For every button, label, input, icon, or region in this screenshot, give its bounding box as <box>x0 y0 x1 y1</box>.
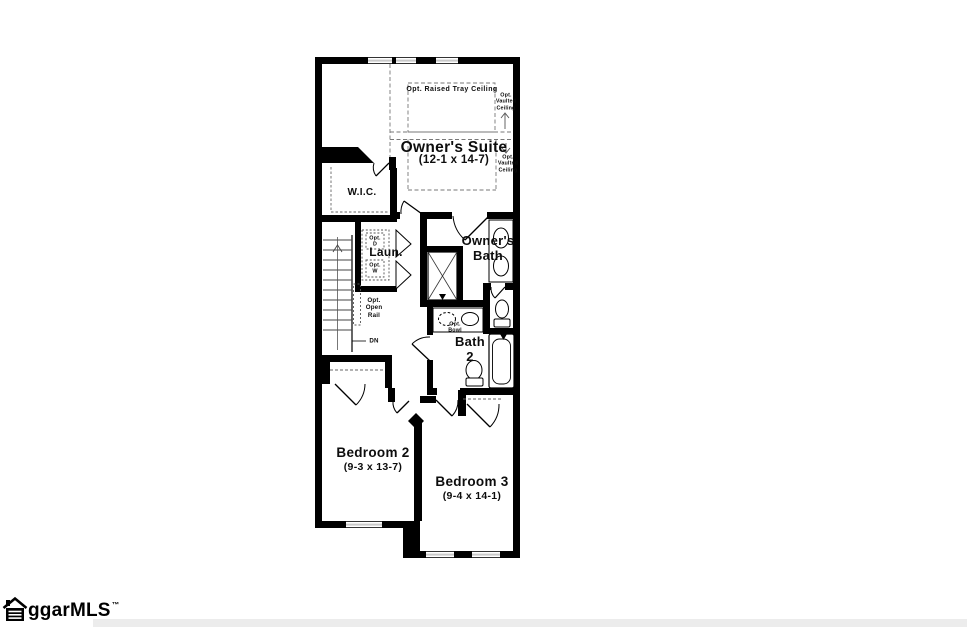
laundry-label: Laun. <box>369 245 403 259</box>
window <box>472 552 500 557</box>
owners-suite-door <box>401 201 422 214</box>
opt-bowl-label: Opt. Bowl <box>448 322 461 335</box>
bottom-gray-strip <box>93 619 967 627</box>
trademark-symbol: ™ <box>112 600 120 609</box>
opt-washer-label: Opt. W <box>369 263 380 276</box>
bedroom2-label: Bedroom 2 <box>336 445 409 461</box>
window <box>436 58 458 63</box>
house-icon <box>2 596 28 623</box>
bedroom3-label: Bedroom 3 <box>435 474 508 490</box>
wic-door <box>373 163 389 176</box>
vaulted-ceiling-lower-label: Opt. Vaulted Ceiling <box>498 154 518 173</box>
floorplan-page: Opt. Raised Tray Ceiling Opt. Vaulted Ce… <box>0 0 967 627</box>
vaulted-ceiling-upper-label: Opt. Vaulted Ceiling <box>496 92 516 111</box>
open-rail-label: Opt. Open Rail <box>366 297 383 319</box>
toilet <box>494 300 510 327</box>
bedroom2-door <box>393 401 409 413</box>
arrow-up-icon <box>501 113 509 129</box>
shower <box>428 252 457 300</box>
window <box>368 58 392 63</box>
bedroom2-dims: (9-3 x 13-7) <box>344 461 402 473</box>
bedroom3-door <box>436 400 458 416</box>
tray-ceiling-label: Opt. Raised Tray Ceiling <box>406 86 497 94</box>
wic-label: W.I.C. <box>347 187 376 199</box>
window <box>396 58 416 63</box>
owners-suite-dims: (12-1 x 14-7) <box>419 154 489 168</box>
dn-label: DN <box>369 337 378 344</box>
window <box>426 552 454 557</box>
bedroom3-closet-door <box>467 404 499 427</box>
bedroom2-closet-door <box>335 384 365 405</box>
bath2-door <box>412 337 430 361</box>
bath2-label: Bath 2 <box>455 335 485 365</box>
sink <box>462 313 479 326</box>
water-closet-door <box>491 287 505 298</box>
owners-bath-label: Owner's Bath <box>462 234 515 264</box>
window <box>346 522 382 527</box>
laundry-bifold-doors <box>396 230 411 289</box>
bathtub <box>489 334 514 388</box>
bedroom3-dims: (9-4 x 14-1) <box>443 490 501 502</box>
